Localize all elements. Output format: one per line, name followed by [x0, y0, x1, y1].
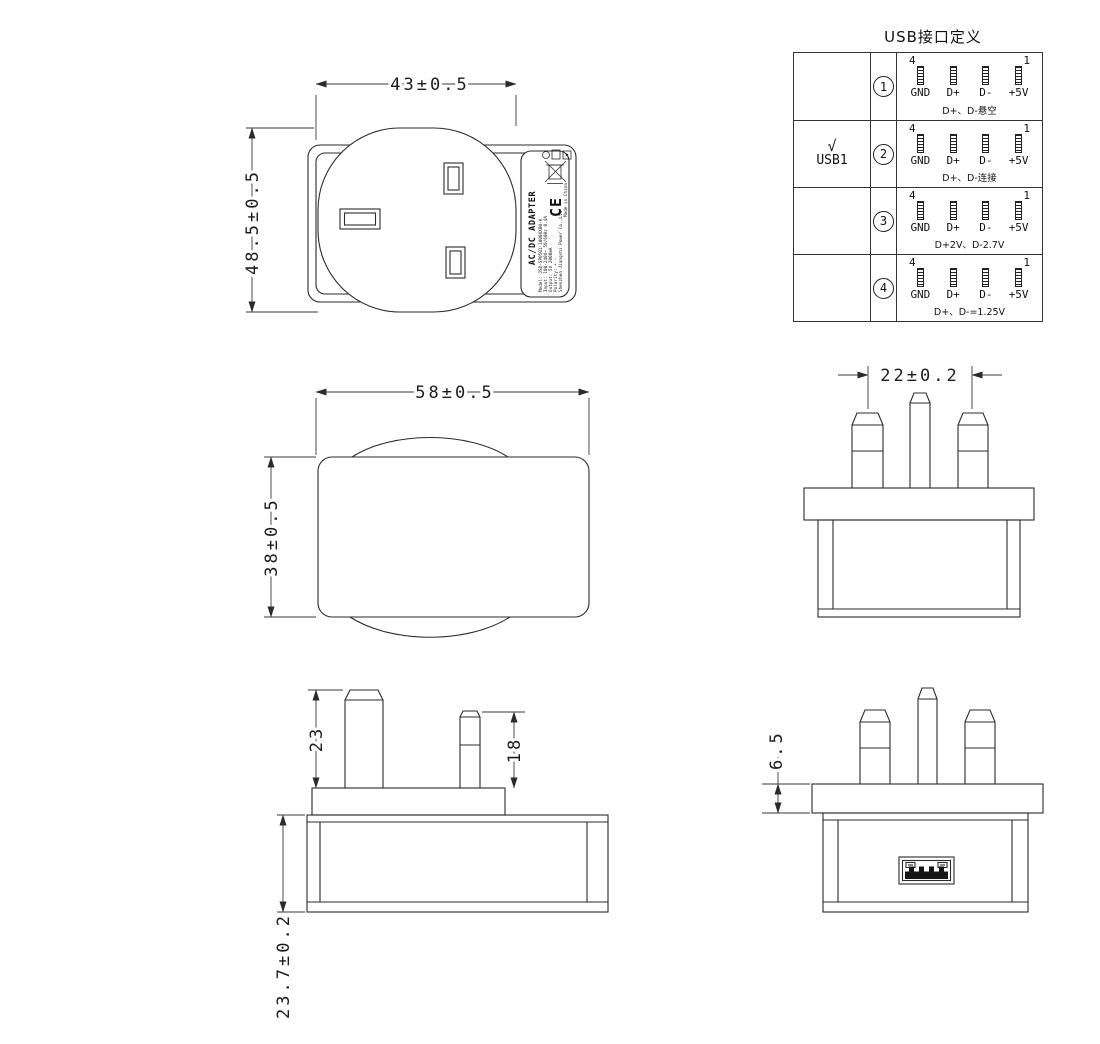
- dim-pin-short: 18: [482, 712, 525, 788]
- pin-note: D+2V、D-2.7V: [897, 237, 1042, 251]
- dim-pin-long-text: 23: [307, 726, 327, 752]
- pin-dminus: D-: [970, 66, 1003, 99]
- pin-note: D+、D-悬空: [897, 103, 1042, 117]
- pin-connector-icon: [917, 134, 924, 153]
- check-mark: √: [827, 140, 836, 153]
- view-side: [307, 690, 608, 912]
- pin-connector-icon: [1015, 268, 1022, 287]
- port-select-cell: [794, 53, 871, 120]
- port-select-cell: √USB1: [794, 121, 871, 187]
- pin-connector-icon: [950, 134, 957, 153]
- dim-front-height-text: 48.5±0.5: [243, 169, 263, 275]
- table-row: 1 4 1 GND D+ D- +5V D+、D-悬空: [794, 53, 1042, 120]
- plug-pin-right: [958, 413, 988, 488]
- pin-connector-icon: [982, 134, 989, 153]
- pin-connector-icon: [950, 66, 957, 85]
- pin-connector-icon: [1015, 201, 1022, 220]
- pin-connector-icon: [1015, 134, 1022, 153]
- pinout-cell: 4 1 GND D+ D- +5V D+2V、D-2.7V: [897, 188, 1042, 254]
- pin-dminus: D-: [970, 201, 1003, 234]
- side-pin-short: [460, 711, 480, 788]
- pin-connector-icon: [950, 268, 957, 287]
- port-select-cell: [794, 255, 871, 321]
- pin-dminus: D-: [970, 268, 1003, 301]
- flange-side: [312, 788, 505, 815]
- pin-gnd: GND: [904, 201, 937, 234]
- pin-note: D+、D-=1.25V: [897, 304, 1042, 318]
- pin-gnd: GND: [904, 66, 937, 99]
- usb-pinout-table: 1 4 1 GND D+ D- +5V D+、D-悬空 √USB1 2: [793, 52, 1043, 322]
- view-bottom-usb: [812, 688, 1043, 912]
- circled-number: 4: [873, 278, 894, 299]
- circled-number: 3: [873, 211, 894, 232]
- pin-connector-icon: [1015, 66, 1022, 85]
- dim-body-height: 23.7±0.2: [274, 815, 305, 1019]
- pin-5v: +5V: [1002, 66, 1035, 99]
- table-row: √USB1 2 4 1 GND D+ D- +5V D+、D-连接: [794, 120, 1042, 187]
- side-pin-long: [345, 690, 383, 788]
- pin-connector-icon: [917, 201, 924, 220]
- pin-connector-icon: [982, 66, 989, 85]
- technical-drawing-canvas: AC/DC ADAPTER Model: JSD-SP0501-1000XXB0…: [0, 0, 1100, 1044]
- table-row: 3 4 1 GND D+ D- +5V D+2V、D-2.7V: [794, 187, 1042, 254]
- pinout-cell: 4 1 GND D+ D- +5V D+、D-=1.25V: [897, 255, 1042, 321]
- bottom-pin-right: [965, 710, 995, 784]
- dim-pin-long: 23: [307, 690, 343, 788]
- plug-face-dome: [318, 128, 516, 312]
- dim-flange-thickness-text: 6.5: [767, 730, 787, 770]
- pin-gnd: GND: [904, 134, 937, 167]
- pin-connector-icon: [982, 268, 989, 287]
- pin-connector-icon: [917, 268, 924, 287]
- dim-pin-short-text: 18: [505, 737, 525, 763]
- plug-pin-left: [852, 413, 883, 488]
- index-cell: 2: [871, 121, 897, 187]
- pin-dminus: D-: [970, 134, 1003, 167]
- index-cell: 4: [871, 255, 897, 321]
- index-cell: 3: [871, 188, 897, 254]
- label-product-name: AC/DC ADAPTER: [528, 191, 538, 266]
- view-front-face: AC/DC ADAPTER Model: JSD-SP0501-1000XXB0…: [308, 128, 576, 312]
- circled-number: 2: [873, 144, 894, 165]
- usb-port: [899, 857, 954, 884]
- pin-connector-icon: [982, 201, 989, 220]
- flange: [804, 488, 1034, 520]
- usb-contacts: [905, 867, 948, 880]
- pin-dplus: D+: [937, 134, 970, 167]
- plug-pin-center: [910, 393, 930, 488]
- index-cell: 1: [871, 53, 897, 120]
- pin-connector-icon: [917, 66, 924, 85]
- flange-bottom: [812, 784, 1043, 813]
- pin-dplus: D+: [937, 268, 970, 301]
- bottom-pin-center: [918, 688, 937, 784]
- view-pins-front: [804, 393, 1034, 617]
- pin-5v: +5V: [1002, 268, 1035, 301]
- pin-5v: +5V: [1002, 201, 1035, 234]
- pin-5v: +5V: [1002, 134, 1035, 167]
- dim-front-height: 48.5±0.5: [243, 128, 318, 312]
- dim-flange-thickness: 6.5: [762, 730, 810, 813]
- circled-number: 1: [873, 76, 894, 97]
- label-made-in: Made in China: [563, 183, 568, 217]
- pinout-cell: 4 1 GND D+ D- +5V D+、D-连接: [897, 121, 1042, 187]
- view-top: [318, 438, 589, 638]
- dim-front-width-text: 43±0.5: [390, 75, 469, 95]
- dim-top-width-text: 58±0.5: [415, 383, 494, 403]
- pin-note: D+、D-连接: [897, 170, 1042, 184]
- table-row: 4 4 1 GND D+ D- +5V D+、D-=1.25V: [794, 254, 1042, 321]
- label-company: Shenzhen Jiangshi Power Co.,Ltd: [558, 210, 563, 292]
- pinout-cell: 4 1 GND D+ D- +5V D+、D-悬空: [897, 53, 1042, 120]
- dim-top-width: 58±0.5: [316, 383, 589, 455]
- port-select-cell: [794, 188, 871, 254]
- bottom-pin-left: [860, 710, 890, 784]
- dim-pin-spacing-text: 22±0.2: [880, 366, 959, 386]
- pin-gnd: GND: [904, 268, 937, 301]
- pin-connector-icon: [950, 201, 957, 220]
- dim-top-depth-text: 38±0.5: [262, 497, 282, 576]
- pin-dplus: D+: [937, 201, 970, 234]
- usb-table-title: USB接口定义: [808, 26, 1058, 47]
- dim-body-height-text: 23.7±0.2: [274, 913, 294, 1019]
- pin-dplus: D+: [937, 66, 970, 99]
- dim-top-depth: 38±0.5: [262, 457, 316, 617]
- port-name: USB1: [816, 153, 847, 168]
